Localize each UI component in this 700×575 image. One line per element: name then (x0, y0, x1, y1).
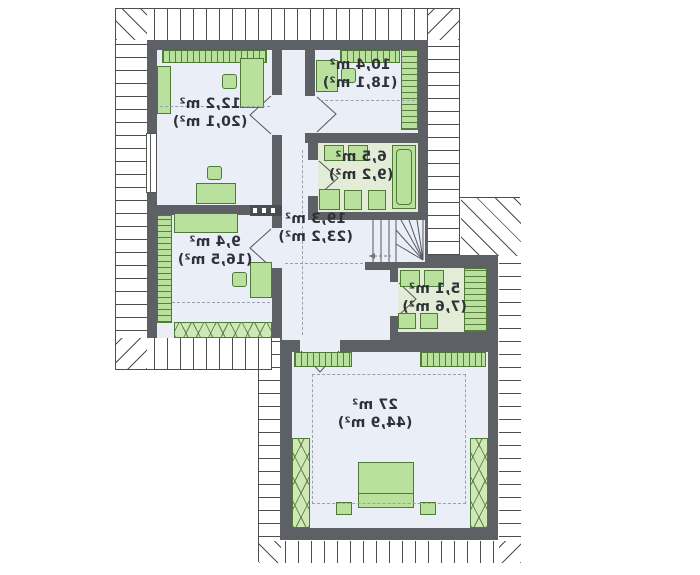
door-opening-room-5-1 (390, 282, 398, 316)
door-leaf-room-10-4 (316, 96, 338, 133)
floor-plan: 12,2 m² (20,1 m²) 10,4 m² (18,1 m²) 6,5 … (0, 0, 700, 575)
wardrobe (157, 215, 172, 323)
roof-band-top (115, 8, 460, 40)
chair (341, 68, 356, 83)
desk (196, 183, 236, 204)
toilet (344, 190, 362, 210)
roof-band-left-upper (115, 8, 147, 370)
knee-wall-line (285, 263, 363, 264)
door-opening-room-10-4 (305, 96, 315, 133)
washing-machine (400, 270, 420, 287)
wardrobe (340, 50, 400, 63)
roof-corner-top-right (461, 198, 521, 256)
wardrobe (292, 438, 310, 528)
door-opening-room-12-2 (272, 95, 282, 135)
hall-main-floor (282, 220, 365, 340)
chair (207, 166, 222, 180)
roof-corner-bottom-left (259, 541, 281, 563)
washbasin (348, 145, 368, 161)
wardrobe (470, 438, 488, 528)
desk (250, 262, 272, 298)
roof-corner-top-left (115, 8, 147, 40)
radiator (250, 205, 282, 216)
knee-wall-line (160, 106, 270, 107)
washbasin (324, 145, 344, 161)
wardrobe (294, 352, 352, 367)
washing-machine (424, 270, 444, 287)
staircase (365, 220, 425, 262)
shower (319, 189, 340, 210)
roof-band-right-upper (428, 8, 460, 255)
bathtub (392, 145, 416, 209)
desk (240, 58, 264, 108)
roof-corner-top-right-upper (428, 8, 460, 40)
chair (232, 272, 247, 287)
knee-wall-line (320, 100, 415, 101)
hall-mid-floor (282, 143, 308, 220)
knee-wall-line (312, 374, 466, 504)
roof-corner-bottom-left-upper (115, 338, 147, 370)
knee-wall-line (302, 150, 303, 335)
wardrobe (420, 352, 486, 367)
roof-band-left (259, 339, 281, 563)
hall-lower-floor (365, 270, 390, 340)
wardrobe (174, 322, 272, 338)
door-opening-room-6-5 (308, 160, 318, 196)
roof-corner-bottom-right (499, 541, 521, 563)
desk (316, 60, 338, 92)
cabinet (398, 313, 416, 329)
bidet (368, 190, 386, 210)
door-leaf-room-5-1 (398, 282, 418, 316)
cabinet (420, 313, 438, 329)
roof-band-bottom (259, 541, 521, 563)
hall-corridor-floor (282, 50, 305, 143)
wardrobe (401, 50, 418, 130)
shelving (464, 268, 487, 332)
knee-wall-line (172, 302, 270, 303)
door-opening-room-9-4 (272, 228, 282, 268)
window-left-wall (146, 133, 157, 193)
bed (174, 213, 238, 233)
chair (222, 74, 237, 89)
